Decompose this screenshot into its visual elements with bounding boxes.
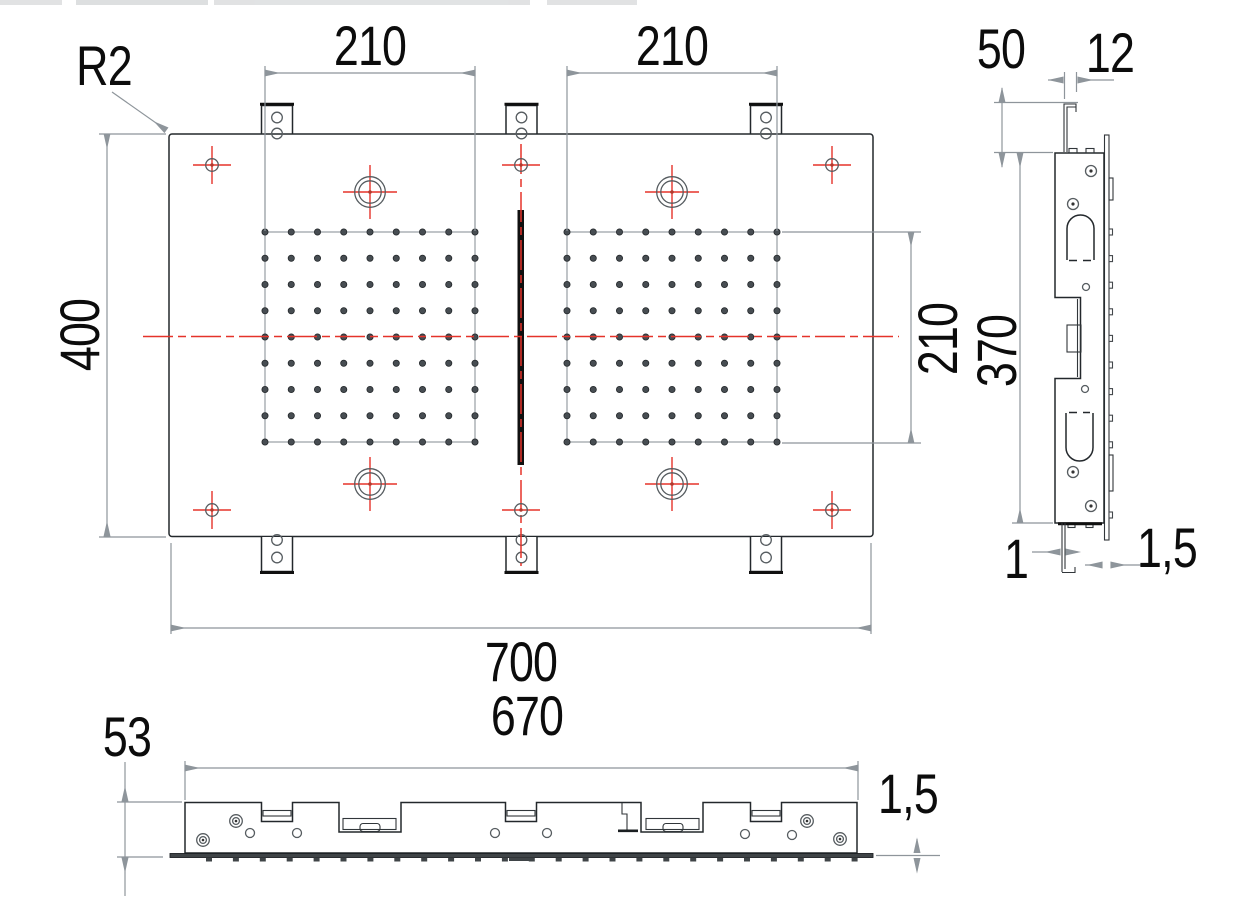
front-view: [99, 66, 921, 634]
dim-label-plate-thickness-1-5: 1,5: [878, 766, 938, 822]
side-frame-body: [1055, 153, 1104, 523]
dim-label-frame-height-370: 370: [969, 315, 1025, 387]
bottom-plate-teeth: [206, 858, 858, 862]
dim-label-hook-offset-50: 50: [977, 21, 1025, 77]
side-bottom-hook: [1062, 523, 1075, 573]
dim-label-top-left-210: 210: [334, 18, 406, 74]
top-crop-artifacts: [0, 0, 637, 5]
dim-label-height-400: 400: [52, 299, 108, 371]
side-indent-tab: [1067, 325, 1081, 352]
dim-label-grid-height-210: 210: [910, 303, 966, 375]
drawing-linework: [0, 0, 1248, 922]
dim-label-top-right-210: 210: [636, 18, 708, 74]
r2-leader: [112, 92, 166, 130]
dim-label-corner-radius: R2: [76, 38, 132, 94]
side-top-hook: [1064, 104, 1076, 152]
bottom-face-plate: [170, 854, 873, 858]
dim-label-face-thickness-1-5: 1,5: [1137, 520, 1197, 576]
bottom-view: [117, 761, 940, 896]
front-top-tabs: [260, 104, 783, 134]
dim-label-inner-width-670: 670: [491, 688, 563, 744]
dim-label-profile-height-53: 53: [103, 709, 151, 765]
dim-label-hook-thickness-1: 1: [1004, 531, 1028, 587]
dim-label-hook-width-12: 12: [1086, 25, 1134, 81]
side-face-sheet: [1105, 135, 1110, 540]
side-face-teeth: [1109, 229, 1113, 448]
drawing-canvas: R2 210 210 400 700 210 50 12 370 1 1,5 5…: [0, 0, 1248, 922]
dim-label-width-700: 700: [485, 634, 557, 690]
